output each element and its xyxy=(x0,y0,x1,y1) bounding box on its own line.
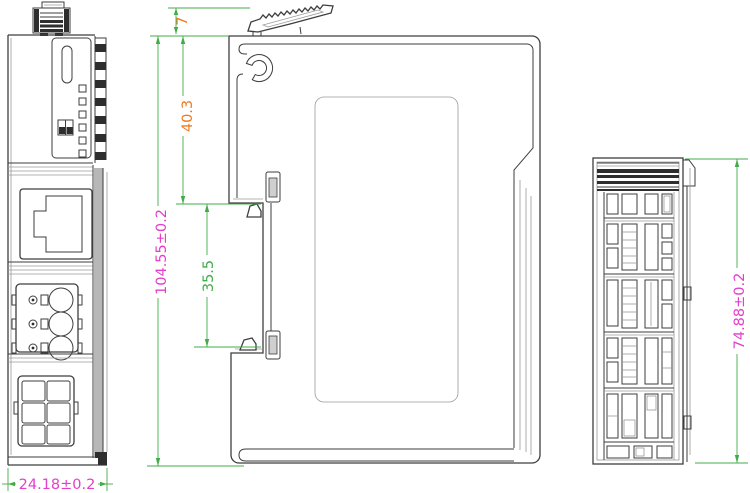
dimension-overall-depth: 74.88±0.2 xyxy=(732,159,748,463)
dim-label-overall-depth: 74.88±0.2 xyxy=(732,273,748,350)
dimension-overall-width: 24.18±0.2 xyxy=(2,477,113,493)
power-terminal-block xyxy=(12,284,82,360)
io-connector xyxy=(14,376,78,446)
dim-label-clip-offset: 7 xyxy=(175,16,191,25)
dim-label-overall-height: 104.55±0.2 xyxy=(154,209,170,295)
status-leds xyxy=(79,85,86,157)
side-view xyxy=(229,5,540,463)
led-panel xyxy=(52,38,91,158)
side-recess xyxy=(315,97,458,402)
din-hook xyxy=(246,55,272,82)
dimension-overall-height: 104.55±0.2 xyxy=(154,36,170,466)
corner-step xyxy=(683,160,695,186)
dim-label-overall-width: 24.18±0.2 xyxy=(19,477,96,493)
dim-label-upper-section: 40.3 xyxy=(180,100,196,132)
ethernet-port xyxy=(20,189,92,259)
vent-grid xyxy=(604,192,674,460)
dimension-din-slot: 35.5 xyxy=(201,204,217,347)
display-slot xyxy=(62,46,72,83)
mounting-foot xyxy=(95,452,107,465)
dimension-clip-offset: 7 xyxy=(174,8,191,34)
dimension-upper-section: 40.3 xyxy=(180,36,196,204)
technical-drawing: 7 40.3 104.55±0.2 35.5 xyxy=(0,0,750,493)
connector-fins xyxy=(95,44,106,160)
dip-switch xyxy=(58,120,73,135)
release-clip xyxy=(248,5,333,36)
front-view xyxy=(8,2,107,465)
bezel-fins xyxy=(597,163,679,191)
din-clip xyxy=(33,2,70,36)
dimension-drawing-svg: 7 40.3 104.55±0.2 35.5 xyxy=(0,0,750,493)
top-view xyxy=(593,158,695,464)
dim-label-din-slot: 35.5 xyxy=(201,260,217,292)
dimensions: 7 40.3 104.55±0.2 35.5 xyxy=(2,8,748,493)
